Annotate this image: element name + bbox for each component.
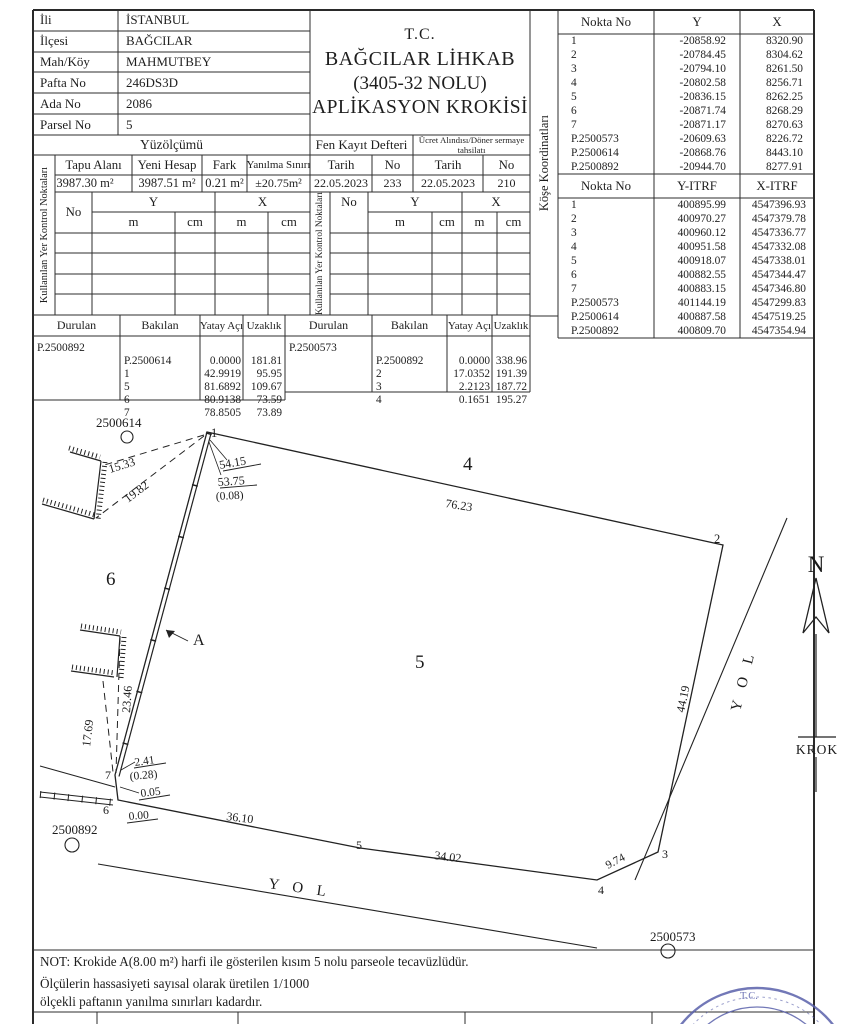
coord-point-no: 1 — [571, 198, 654, 212]
measure-0-05: 0.05 — [140, 786, 162, 800]
coords2-no-column: 1234567P.2500573P.2500614P.2500892 — [558, 198, 654, 338]
ucret-header-no: No — [483, 155, 530, 175]
ctl-right-header-cm1: cm — [432, 212, 462, 233]
coord-x-value: 4547299.83 — [740, 296, 806, 310]
info-value: MAHMUTBEY — [118, 54, 211, 70]
corner-coordinates-strip: Köşe Koordinatları — [530, 10, 558, 316]
area-header-fark: Fark — [202, 155, 247, 175]
coords2-header-x-itrf: X-ITRF — [740, 174, 814, 198]
ucret-value-tarih: 22.05.2023 — [413, 175, 483, 192]
coords2-y-column: 400895.99400970.27400960.12400951.584009… — [654, 198, 726, 338]
dashed-offset-17-69 — [103, 681, 113, 772]
obs-yatay-value: 42.9919 — [198, 368, 241, 381]
title-line-3: (3405-32 NOLU) — [353, 73, 487, 95]
right-road-edge — [635, 518, 787, 880]
coord-y-value: 400970.27 — [654, 212, 726, 226]
obs-bakilan-value: P.2500892 — [376, 355, 444, 368]
coord-y-value: 400809.70 — [654, 324, 726, 338]
ctl-right-header-cm2: cm — [497, 212, 530, 233]
neighbor-parcel-6: 6 — [106, 569, 116, 590]
coord-y-value: 400883.15 — [654, 282, 726, 296]
info-row: İlçesi BAĞCILAR — [33, 31, 310, 52]
coord-point-no: 4 — [571, 76, 654, 90]
measure-2-41: 2.41 — [134, 754, 156, 769]
info-row: Ada No 2086 — [33, 93, 310, 114]
coord-x-value: 4547396.93 — [740, 198, 806, 212]
obs-bakilan-value: 5 — [124, 381, 196, 394]
neighbor-parcel-4: 4 — [463, 454, 473, 475]
measure-17-69: 17.69 — [79, 719, 96, 748]
obs-yatay-value: 0.1651 — [445, 394, 490, 407]
coord-y-value: -20802.58 — [654, 76, 726, 90]
measure-0-28: (0.28) — [129, 769, 158, 783]
vertex-label-3: 3 — [662, 847, 668, 861]
parcel-number: 5 — [415, 652, 425, 673]
obs-yatay-value: 0.0000 — [445, 355, 490, 368]
ctl-left-header-m2: m — [215, 212, 268, 233]
note-line-2: Ölçülerin hassasiyeti sayısal olarak üre… — [40, 976, 309, 992]
coord-point-no: 3 — [571, 62, 654, 76]
obs-bakilan-value: P.2500614 — [124, 355, 196, 368]
coord-x-value: 8261.50 — [740, 62, 803, 76]
measure-54-15: 54.15 — [218, 453, 247, 471]
ctl-left-header-y: Y — [92, 192, 215, 212]
info-row: Pafta No 246DS3D — [33, 72, 310, 93]
area-section-title: Yüzölçümü — [33, 135, 310, 155]
info-row: İli İSTANBUL — [33, 10, 310, 31]
coord-point-no: 7 — [571, 118, 654, 132]
obs-uzaklik-value: 109.67 — [244, 381, 282, 394]
obs-bakilan-value: 4 — [376, 394, 444, 407]
obs2-uzaklik-column: 338.96191.39187.72195.27 — [493, 355, 527, 407]
coord-x-value: 8268.29 — [740, 104, 803, 118]
control-points-label: Kullanılan Yer Kontrol Noktaları — [315, 192, 325, 315]
measure-0-00: 0.00 — [128, 809, 149, 823]
fen-kayit-title: Fen Kayıt Defteri — [310, 135, 413, 155]
coord-point-no: 5 — [571, 90, 654, 104]
encroachment-label: A — [193, 632, 205, 649]
station-label: 2500892 — [52, 822, 98, 837]
title-block: T.C. BAĞCILAR LİHKAB (3405-32 NOLU) APLİ… — [310, 12, 530, 132]
info-label: İlçesi — [33, 33, 118, 49]
fen-value-no: 233 — [372, 175, 413, 192]
obs1-durulan-value: P.2500892 — [37, 341, 117, 354]
obs-yatay-value: 0.0000 — [198, 355, 241, 368]
coord-y-value: -20871.17 — [654, 118, 726, 132]
coord-y-value: -20944.70 — [654, 160, 726, 174]
north-letter: N — [808, 552, 825, 577]
coord-x-value: 4547519.25 — [740, 310, 806, 324]
ctl-right-header-x: X — [462, 192, 530, 212]
building-wall — [71, 630, 120, 677]
info-label: Ada No — [33, 96, 118, 112]
coord-point-no: 6 — [571, 268, 654, 282]
obs1-uzaklik-column: 181.8195.95109.6773.5973.89 — [244, 355, 282, 420]
coord-x-value: 8277.91 — [740, 160, 803, 174]
coord-point-no: P.2500573 — [571, 132, 654, 146]
coord-point-no: 3 — [571, 226, 654, 240]
coord-y-value: -20858.92 — [654, 34, 726, 48]
ctl-right-header-y: Y — [368, 192, 462, 212]
area-value-yeni: 3987.51 m² — [132, 175, 202, 192]
note-line-3: ölçekli paftanın yanılma sınırları kadar… — [40, 994, 262, 1010]
ctl-left-header-m1: m — [92, 212, 175, 233]
ucret-title: Ücret Alındısı/Döner sermaye tahsilatı — [413, 134, 530, 156]
coord-x-value: 4547354.94 — [740, 324, 806, 338]
info-label: Mah/Köy — [33, 54, 118, 70]
coord-point-no: P.2500573 — [571, 296, 654, 310]
obs1-header-bakilan: Bakılan — [120, 315, 200, 336]
ucret-value-no: 210 — [483, 175, 530, 192]
area-header-yeni: Yeni Hesap — [132, 155, 202, 175]
obs-yatay-value: 2.2123 — [445, 381, 490, 394]
aplikasyon-krokisi-document: 2500614 1 15.33 19.82 54.15 53.75 (0.08)… — [0, 0, 846, 1024]
coord-x-value: 8256.71 — [740, 76, 803, 90]
coord-y-value: -20609.63 — [654, 132, 726, 146]
note-line-1: NOT: Krokide A(8.00 m²) harfi ile göster… — [40, 954, 469, 970]
obs2-header-uzaklik: Uzaklık — [492, 315, 530, 336]
title-line-2: BAĞCILAR LİHKAB — [325, 48, 515, 71]
obs-bakilan-value: 6 — [124, 394, 196, 407]
info-label: Parsel No — [33, 117, 118, 133]
measure-9-74: 9.74 — [604, 851, 628, 871]
coord-y-value: 401144.19 — [654, 296, 726, 310]
measure-44-19: 44.19 — [673, 684, 692, 713]
measure-76-23: 76.23 — [445, 496, 474, 514]
obs1-bakilan-column: P.25006141567 — [124, 355, 196, 420]
ucret-title-text: Ücret Alındısı/Döner sermaye tahsilatı — [419, 135, 525, 155]
coords1-header-y: Y — [654, 10, 740, 34]
obs-uzaklik-value: 338.96 — [493, 355, 527, 368]
measure-0-08: (0.08) — [216, 490, 245, 503]
coord-y-value: -20836.15 — [654, 90, 726, 104]
corner-coordinates-label: Köşe Koordinatları — [537, 115, 552, 211]
obs-uzaklik-value: 181.81 — [244, 355, 282, 368]
coord-x-value: 8443.10 — [740, 146, 803, 160]
strip-tick-marks — [117, 433, 209, 775]
coord-point-no: 2 — [571, 48, 654, 62]
coord-y-value: -20784.45 — [654, 48, 726, 62]
ctl-right-header-m1: m — [368, 212, 432, 233]
ctl-right-header-no: No — [330, 192, 368, 212]
coord-point-no: 1 — [571, 34, 654, 48]
measure-53-75: 53.75 — [217, 473, 245, 489]
coord-x-value: 8270.63 — [740, 118, 803, 132]
obs-uzaklik-value: 73.89 — [244, 407, 282, 420]
coord-point-no: 4 — [571, 240, 654, 254]
coords2-header-nokta: Nokta No — [558, 174, 654, 198]
coord-y-value: -20868.76 — [654, 146, 726, 160]
bottom-road-edge — [98, 864, 597, 948]
left-road-line — [40, 766, 115, 787]
parcel-info-table: İli İSTANBUL İlçesi BAĞCILAR Mah/Köy MAH… — [33, 10, 310, 135]
road-label-right: Y O L — [728, 648, 759, 713]
obs-bakilan-value: 7 — [124, 407, 196, 420]
info-value: İSTANBUL — [118, 12, 189, 28]
coord-y-value: -20794.10 — [654, 62, 726, 76]
ucret-header-tarih: Tarih — [413, 155, 483, 175]
info-label: İli — [33, 12, 118, 28]
coord-x-value: 4547379.78 — [740, 212, 806, 226]
coord-x-value: 8320.90 — [740, 34, 803, 48]
ctl-right-header-m2: m — [462, 212, 497, 233]
control-points-strip-right: Kullanılan Yer Kontrol Noktaları — [310, 192, 330, 315]
coord-y-value: 400951.58 — [654, 240, 726, 254]
info-value: 5 — [118, 117, 133, 133]
coord-x-value: 4547332.08 — [740, 240, 806, 254]
coord-point-no: 2 — [571, 212, 654, 226]
control-points-strip-left: Kullanılan Yer Kontrol Noktaları — [33, 155, 55, 315]
fen-header-no: No — [372, 155, 413, 175]
measure-15-33: 15.33 — [107, 455, 137, 476]
coords1-y-column: -20858.92-20784.45-20794.10-20802.58-208… — [654, 34, 726, 174]
area-header-yanilma: Yanılma Sınırı — [247, 155, 310, 175]
obs2-bakilan-column: P.2500892234 — [376, 355, 444, 407]
obs2-durulan-value: P.2500573 — [289, 341, 369, 354]
coord-y-value: 400918.07 — [654, 254, 726, 268]
coord-x-value: 4547344.47 — [740, 268, 806, 282]
north-arrow-icon — [803, 578, 829, 633]
obs-uzaklik-value: 95.95 — [244, 368, 282, 381]
coords1-no-column: 1234567P.2500573P.2500614P.2500892 — [558, 34, 654, 174]
measure-23-46: 23.46 — [119, 685, 135, 713]
coord-point-no: P.2500614 — [571, 146, 654, 160]
building-hatching — [72, 626, 124, 678]
krok-label: KROK — [796, 742, 838, 757]
obs2-header-durulan: Durulan — [285, 315, 372, 336]
coord-x-value: 8304.62 — [740, 48, 803, 62]
coord-x-value: 8226.72 — [740, 132, 803, 146]
station-label: 2500573 — [650, 929, 696, 944]
coord-y-value: 400882.55 — [654, 268, 726, 282]
coords1-x-column: 8320.908304.628261.508256.718262.258268.… — [740, 34, 803, 174]
obs1-header-durulan: Durulan — [33, 315, 120, 336]
obs-uzaklik-value: 195.27 — [493, 394, 527, 407]
ctl-left-header-no: No — [55, 192, 92, 233]
coord-point-no: 5 — [571, 254, 654, 268]
coord-point-no: P.2500892 — [571, 324, 654, 338]
compass-line — [798, 634, 836, 792]
title-line-1: T.C. — [404, 26, 435, 44]
obs-bakilan-value: 2 — [376, 368, 444, 381]
coord-x-value: 8262.25 — [740, 90, 803, 104]
obs1-header-uzaklik: Uzaklık — [243, 315, 285, 336]
coord-y-value: 400887.58 — [654, 310, 726, 324]
vertex-label-2: 2 — [714, 532, 720, 546]
obs-yatay-value: 17.0352 — [445, 368, 490, 381]
obs-yatay-value: 78.8505 — [198, 407, 241, 420]
info-value: BAĞCILAR — [118, 33, 192, 49]
station-symbol-2500614 — [121, 431, 133, 443]
info-label: Pafta No — [33, 75, 118, 91]
station-symbol-2500573 — [661, 944, 675, 958]
measure-34-02: 34.02 — [434, 848, 463, 865]
vertex-label-6: 6 — [103, 803, 109, 817]
coords1-header-x: X — [740, 10, 814, 34]
stamp-text: T.C. — [740, 991, 758, 1002]
measure-36-10: 36.10 — [226, 809, 255, 826]
fen-value-tarih: 22.05.2023 — [310, 175, 372, 192]
obs-yatay-value: 81.6892 — [198, 381, 241, 394]
control-points-label: Kullanılan Yer Kontrol Noktaları — [39, 167, 50, 303]
vertex-label-1: 1 — [211, 426, 217, 440]
measure-19-82: 19.82 — [121, 478, 151, 505]
obs-bakilan-value: 1 — [124, 368, 196, 381]
obs-uzaklik-value: 191.39 — [493, 368, 527, 381]
area-value-yanilma: ±20.75m² — [247, 175, 310, 192]
ctl-left-header-cm2: cm — [268, 212, 310, 233]
road-label-bottom: Y O L — [267, 876, 331, 901]
coord-x-value: 4547336.77 — [740, 226, 806, 240]
info-row: Parsel No 5 — [33, 114, 310, 135]
area-header-tapu: Tapu Alanı — [55, 155, 132, 175]
coord-y-value: 400895.99 — [654, 198, 726, 212]
obs2-header-yatay: Yatay Açı — [447, 315, 492, 336]
coord-y-value: -20871.74 — [654, 104, 726, 118]
obs2-header-bakilan: Bakılan — [372, 315, 447, 336]
obs-bakilan-value: 3 — [376, 381, 444, 394]
building-wall — [42, 452, 101, 519]
vertex-label-4: 4 — [598, 883, 604, 897]
info-value: 2086 — [118, 96, 152, 112]
coord-point-no: 7 — [571, 282, 654, 296]
coords2-x-column: 4547396.934547379.784547336.774547332.08… — [740, 198, 806, 338]
fen-header-tarih: Tarih — [310, 155, 372, 175]
vertex-label-7: 7 — [105, 768, 111, 782]
title-line-4: APLİKASYON KROKİSİ — [312, 97, 528, 119]
coords2-header-y-itrf: Y-ITRF — [654, 174, 740, 198]
station-symbol-2500892 — [65, 838, 79, 852]
coord-point-no: P.2500614 — [571, 310, 654, 324]
info-row: Mah/Köy MAHMUTBEY — [33, 52, 310, 73]
coord-y-value: 400960.12 — [654, 226, 726, 240]
coords1-header-nokta: Nokta No — [558, 10, 654, 34]
info-value: 246DS3D — [118, 75, 178, 91]
obs-uzaklik-value: 187.72 — [493, 381, 527, 394]
vertex-label-5: 5 — [356, 838, 362, 852]
ctl-left-header-x: X — [215, 192, 310, 212]
obs2-yatay-column: 0.000017.03522.21230.1651 — [445, 355, 490, 407]
obs1-yatay-column: 0.000042.991981.689280.913878.8505 — [198, 355, 241, 420]
obs1-header-yatay: Yatay Açı — [200, 315, 243, 336]
area-value-fark: 0.21 m² — [202, 175, 247, 192]
ctl-left-header-cm1: cm — [175, 212, 215, 233]
obs-yatay-value: 80.9138 — [198, 394, 241, 407]
coord-x-value: 4547346.80 — [740, 282, 806, 296]
coord-point-no: P.2500892 — [571, 160, 654, 174]
coord-point-no: 6 — [571, 104, 654, 118]
coord-x-value: 4547338.01 — [740, 254, 806, 268]
obs-uzaklik-value: 73.59 — [244, 394, 282, 407]
